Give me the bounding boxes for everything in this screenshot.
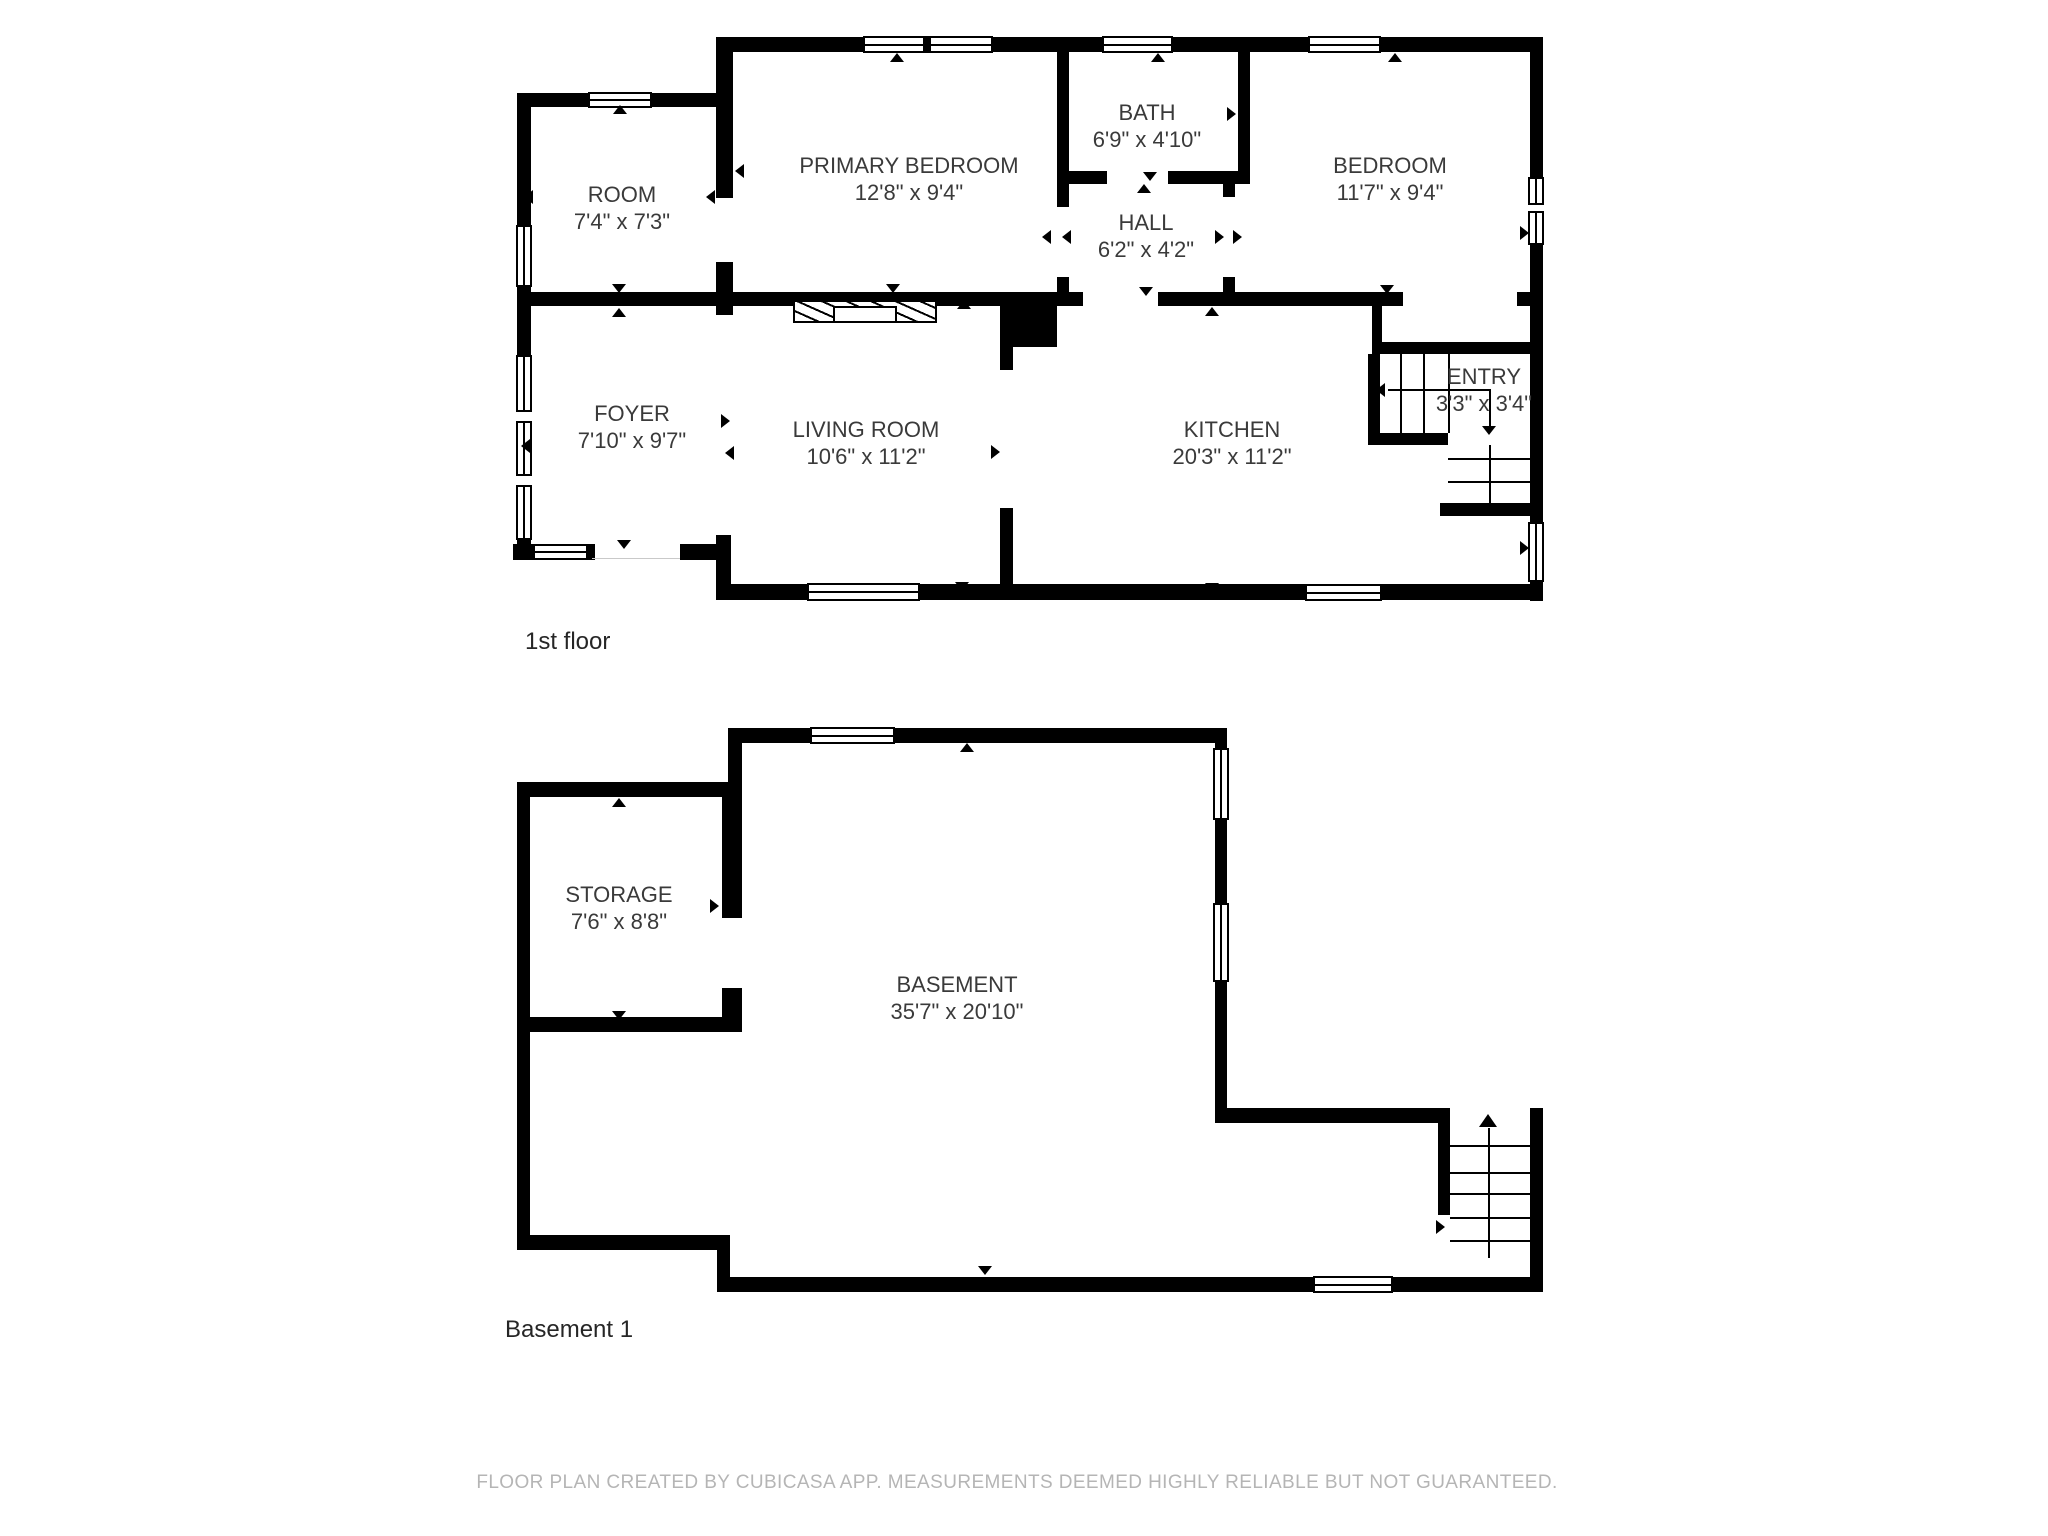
wall [728,728,1227,743]
stair-tread [1450,1217,1530,1219]
stair-tread [1450,1240,1530,1242]
room-dimensions: 35'7" x 20'10" [891,998,1024,1025]
wall [1215,1108,1450,1123]
wall [722,797,742,918]
door-swing-arrow [1436,1220,1445,1234]
floor-title-basement-1: Basement 1 [505,1316,633,1344]
wall [517,782,530,1250]
door-swing-arrow [612,1011,626,1020]
window-marker [960,743,974,752]
room-name: STORAGE [565,881,672,908]
window [810,727,895,744]
door-swing-arrow [520,899,529,913]
basement-plan: STORAGE 7'6" x 8'8" BASEMENT 35'7" x 20'… [0,0,2048,1536]
door-swing-arrow [710,899,719,913]
window-marker [978,1266,992,1275]
wall [517,782,742,797]
stair-tread [1450,1193,1530,1195]
door-swing-arrow [521,1219,530,1233]
window [1313,1276,1393,1293]
room-label-basement: BASEMENT 35'7" x 20'10" [891,971,1024,1025]
wall [728,728,742,797]
wall [517,1235,730,1250]
stair-tread [1450,1145,1530,1147]
room-dimensions: 7'6" x 8'8" [565,908,672,935]
disclaimer-text: FLOOR PLAN CREATED BY CUBICASA APP. MEAS… [476,1472,1557,1494]
door-swing-arrow [612,798,626,807]
stair-direction-line [1488,1128,1490,1258]
wall [1438,1108,1450,1215]
wall [717,1277,1543,1292]
window [1213,748,1229,820]
stair-direction-arrow [1479,1114,1497,1127]
room-name: BASEMENT [891,971,1024,998]
floor-plan-page: ROOM 7'4" x 7'3" PRIMARY BEDROOM 12'8" x… [0,0,2048,1536]
wall [717,1235,730,1292]
room-label-storage: STORAGE 7'6" x 8'8" [565,881,672,935]
stair-tread [1450,1172,1530,1174]
wall [722,988,742,1032]
wall [1530,1108,1543,1292]
window [1213,903,1229,982]
wall [517,1017,742,1032]
